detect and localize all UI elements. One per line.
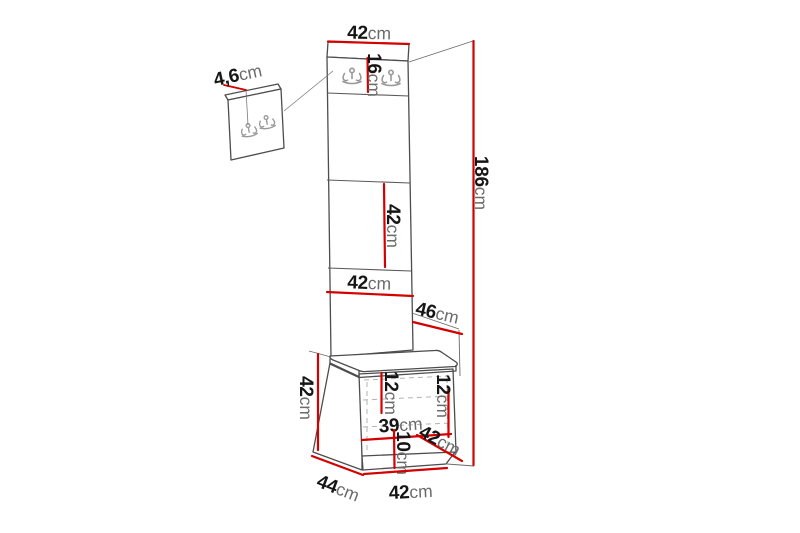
dim-wall-panel-depth: 4,6cm [212,60,264,91]
dim-total-height: 186cm [470,41,491,465]
dim-compartment-height-left: 12cm [380,371,401,415]
dim-label-panel-width-lower: 42cm [347,272,392,295]
dim-label-plinth-height: 10cm [392,431,413,475]
dim-hook-panel-height: 16cm [363,53,384,97]
dim-plinth-height: 10cm [392,430,413,475]
dim-label-panel-width-top: 42cm [347,23,391,45]
bench-left-side [313,363,362,470]
dim-label-bench-height: 42cm [295,376,316,420]
dim-label-wall-panel-depth: 4,6cm [212,60,264,91]
dim-label-compartment-height-right: 12cm [432,374,453,418]
wall-panel-front-face [228,89,284,160]
dim-label-bench-width: 42cm [388,481,433,504]
callout-line-to-panel [284,71,333,111]
dim-panel-width-top: 42cm [328,23,409,45]
dim-label-panel-section-height: 42cm [382,204,403,248]
furniture-dimension-diagram: 42cm 16cm 4,6cm 186cm 42cm 42cm 46cm 42c… [0,0,800,533]
dim-label-bench-depth: 44cm [314,471,362,506]
diagram-canvas: 42cm 16cm 4,6cm 186cm 42cm 42cm 46cm 42c… [0,0,800,533]
dim-bench-area-depth: 46cm [413,298,462,334]
dim-label-total-height: 186cm [470,156,491,210]
dim-label-compartment-height-left: 12cm [380,371,401,415]
dim-label-hook-panel-height: 16cm [363,53,384,97]
